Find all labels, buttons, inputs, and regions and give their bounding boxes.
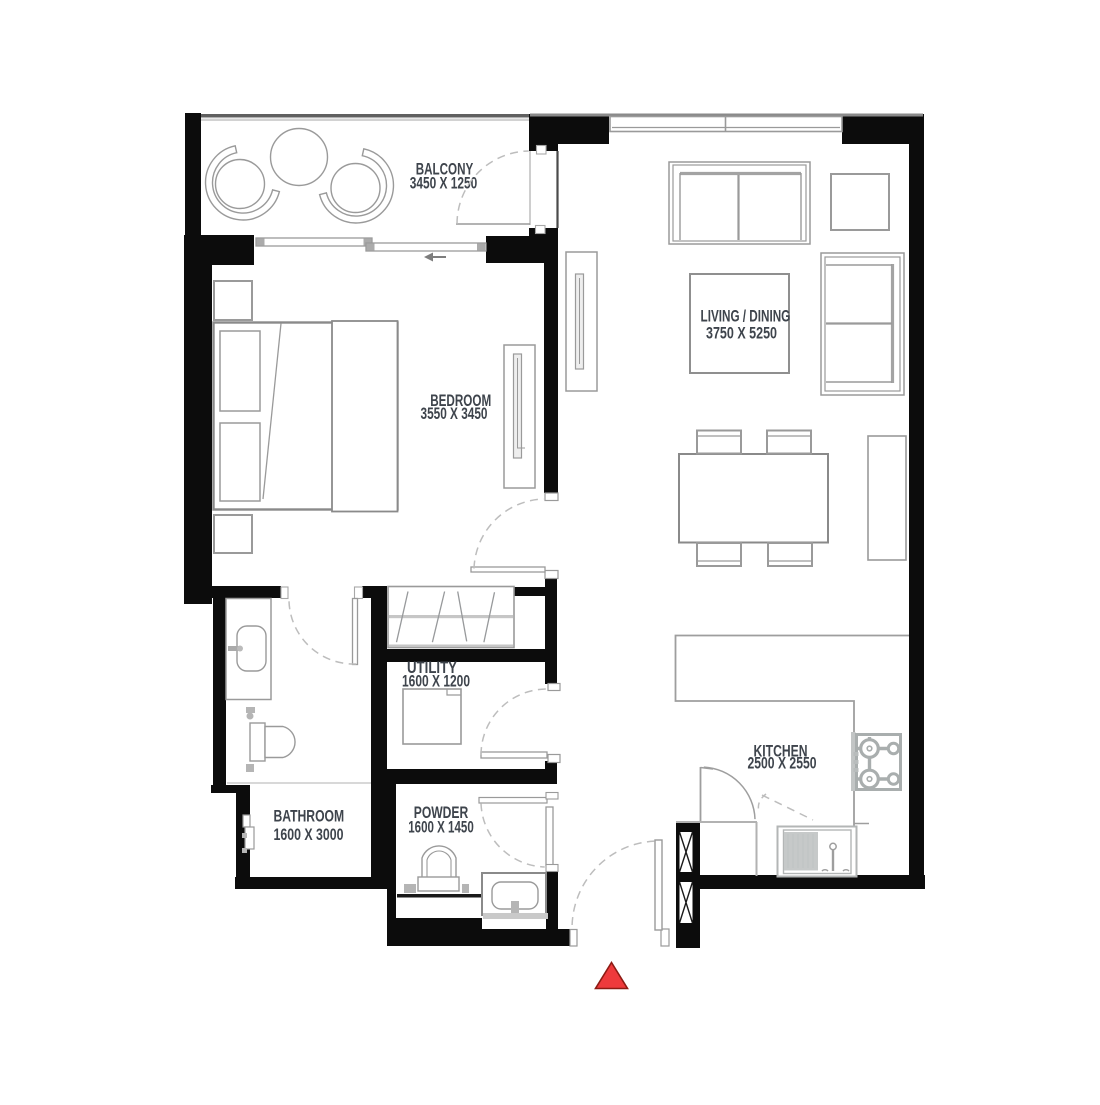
- svg-text:1600 X 3000: 1600 X 3000: [274, 825, 344, 844]
- svg-text:3450 X 1250: 3450 X 1250: [410, 174, 478, 193]
- svg-text:2500 X 2550: 2500 X 2550: [748, 754, 817, 773]
- svg-text:BATHROOM: BATHROOM: [273, 807, 344, 826]
- svg-text:3750 X 5250: 3750 X 5250: [706, 324, 777, 343]
- svg-text:1600 X 1450: 1600 X 1450: [408, 818, 474, 837]
- svg-text:1600 X 1200: 1600 X 1200: [402, 672, 470, 691]
- svg-text:3550 X 3450: 3550 X 3450: [421, 404, 488, 423]
